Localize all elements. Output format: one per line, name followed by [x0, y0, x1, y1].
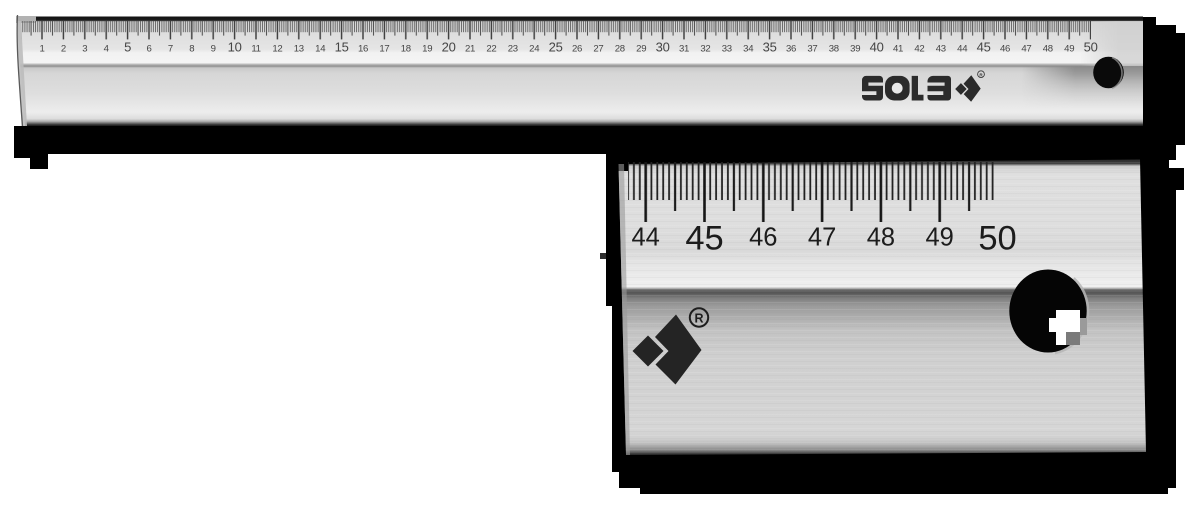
svg-text:6: 6 [146, 43, 151, 54]
svg-text:47: 47 [1021, 43, 1031, 54]
svg-text:24: 24 [529, 43, 540, 54]
svg-text:3: 3 [82, 43, 87, 54]
svg-text:36: 36 [786, 43, 796, 54]
svg-text:44: 44 [632, 224, 660, 252]
svg-text:50: 50 [978, 220, 1016, 258]
svg-text:8: 8 [189, 43, 194, 54]
svg-text:15: 15 [335, 39, 349, 54]
svg-text:50: 50 [1084, 39, 1098, 54]
svg-text:45: 45 [685, 220, 723, 258]
svg-text:41: 41 [893, 43, 903, 54]
svg-text:28: 28 [615, 43, 625, 54]
svg-text:10: 10 [228, 39, 242, 54]
svg-text:29: 29 [636, 43, 646, 54]
svg-text:2: 2 [61, 43, 66, 54]
svg-text:R: R [694, 311, 703, 325]
svg-text:1: 1 [39, 43, 44, 54]
svg-text:27: 27 [593, 43, 603, 54]
svg-text:16: 16 [358, 43, 368, 54]
svg-text:47: 47 [808, 224, 836, 252]
svg-text:45: 45 [977, 39, 991, 54]
svg-text:46: 46 [1000, 43, 1010, 54]
svg-text:19: 19 [422, 43, 432, 54]
svg-text:46: 46 [749, 224, 777, 252]
svg-text:38: 38 [829, 43, 839, 54]
svg-text:43: 43 [936, 43, 946, 54]
svg-text:21: 21 [465, 43, 475, 54]
svg-text:34: 34 [743, 43, 754, 54]
svg-text:7: 7 [168, 43, 173, 54]
svg-text:30: 30 [656, 39, 670, 54]
svg-text:49: 49 [1064, 43, 1074, 54]
svg-text:33: 33 [722, 43, 732, 54]
svg-text:42: 42 [914, 43, 924, 54]
svg-text:23: 23 [508, 43, 518, 54]
svg-text:35: 35 [763, 39, 777, 54]
svg-text:49: 49 [926, 224, 954, 252]
svg-text:5: 5 [124, 39, 131, 54]
svg-text:44: 44 [957, 43, 968, 54]
svg-text:48: 48 [867, 224, 895, 252]
svg-text:39: 39 [850, 43, 860, 54]
svg-text:40: 40 [870, 39, 884, 54]
svg-text:17: 17 [379, 43, 389, 54]
svg-text:48: 48 [1043, 43, 1053, 54]
svg-text:25: 25 [549, 39, 563, 54]
svg-text:37: 37 [807, 43, 817, 54]
svg-text:26: 26 [572, 43, 582, 54]
svg-text:9: 9 [211, 43, 216, 54]
svg-text:13: 13 [294, 43, 304, 54]
svg-text:18: 18 [401, 43, 411, 54]
svg-text:20: 20 [442, 39, 456, 54]
svg-text:14: 14 [315, 43, 326, 54]
svg-text:11: 11 [251, 43, 260, 54]
svg-text:32: 32 [700, 43, 710, 54]
svg-text:22: 22 [486, 43, 496, 54]
svg-text:31: 31 [679, 43, 689, 54]
svg-text:12: 12 [272, 43, 282, 54]
